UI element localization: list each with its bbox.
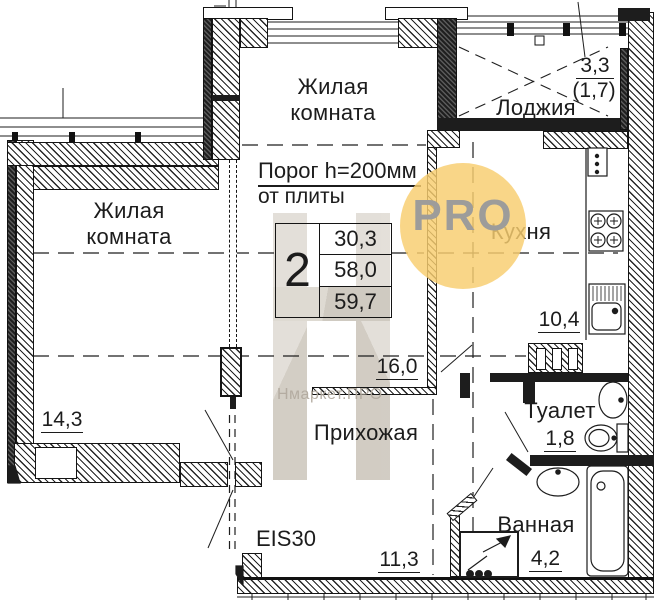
area-toilet: 1,8	[544, 428, 576, 452]
pro-badge-text: PRO	[412, 191, 513, 241]
stamp-area: 58,0	[320, 255, 391, 286]
stamp-rooms-count: 2	[276, 224, 320, 317]
area-bathroom: 4,2	[529, 548, 562, 572]
kitchen-sink-icon	[589, 284, 625, 334]
area-kitchen: 10,4	[538, 309, 580, 333]
kitchen-appliance-icon	[588, 148, 607, 176]
room-label-toilet: Туалет	[505, 398, 615, 424]
area-living-top: 16,0	[376, 356, 418, 380]
pro-badge-watermark: PRO	[400, 163, 526, 289]
area-loggia-coef: (1,7)	[568, 80, 620, 101]
floor-plan: Жилая комната Жилая комната Лоджия 3,3 (…	[0, 0, 654, 600]
area-living-left: 14,3	[41, 409, 83, 433]
threshold-note-line2: от плиты	[258, 186, 378, 207]
utility-box-icon	[460, 532, 518, 577]
room-label-living-top: Жилая комната	[268, 74, 398, 126]
apartment-stamp: 2 30,3 58,0 59,7	[275, 223, 392, 318]
stove-icon	[589, 211, 623, 251]
wall-end-mark	[8, 466, 20, 483]
fire-door-rating: EIS30	[256, 526, 316, 552]
room-label-bathroom: Ванная	[486, 512, 586, 538]
toilet-bowl-icon	[585, 424, 628, 452]
area-loggia: 3,3	[576, 55, 614, 79]
area-hallway: 11,3	[378, 549, 420, 573]
threshold-note-line1: Порог h=200мм	[258, 160, 421, 187]
room-label-hallway: Прихожая	[306, 420, 426, 446]
bathtub-icon	[587, 466, 628, 576]
stamp-total-area: 59,7	[320, 287, 391, 317]
door-hinge-mark	[236, 566, 243, 585]
bathroom-sink-icon	[537, 468, 579, 496]
brand-watermark-text: Нмаркет.ПРО	[277, 386, 383, 404]
stamp-living-area: 30,3	[320, 224, 391, 255]
room-label-living-left: Жилая комната	[64, 198, 194, 250]
